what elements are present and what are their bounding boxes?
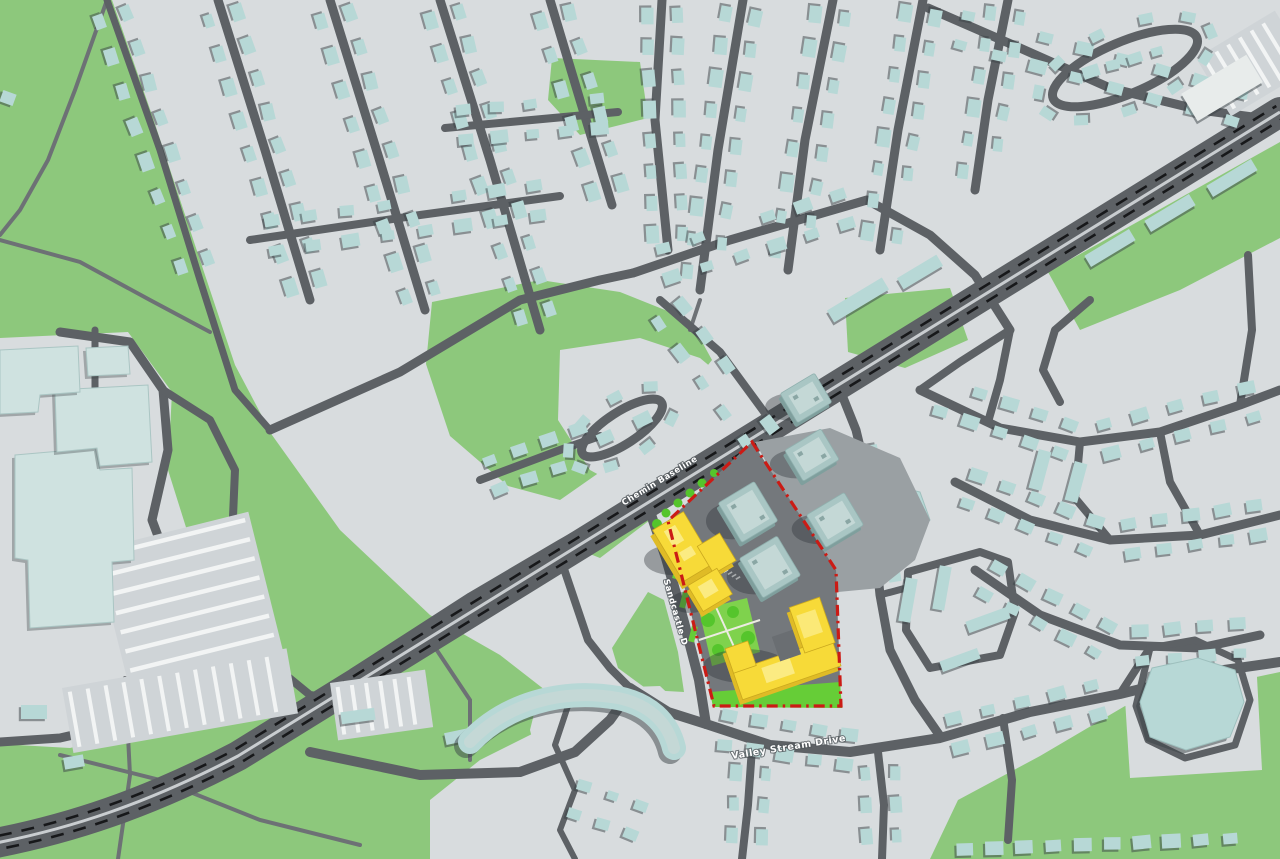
- school-building: [1140, 658, 1244, 750]
- hospital-building: [86, 346, 130, 376]
- street-tree: [674, 499, 683, 508]
- map-canvas[interactable]: Chemin Baseline Sandcastle D Valley Stre…: [0, 0, 1280, 859]
- map-viewport[interactable]: Chemin Baseline Sandcastle D Valley Stre…: [0, 0, 1280, 859]
- street-tree: [698, 479, 707, 488]
- street-tree: [662, 509, 671, 518]
